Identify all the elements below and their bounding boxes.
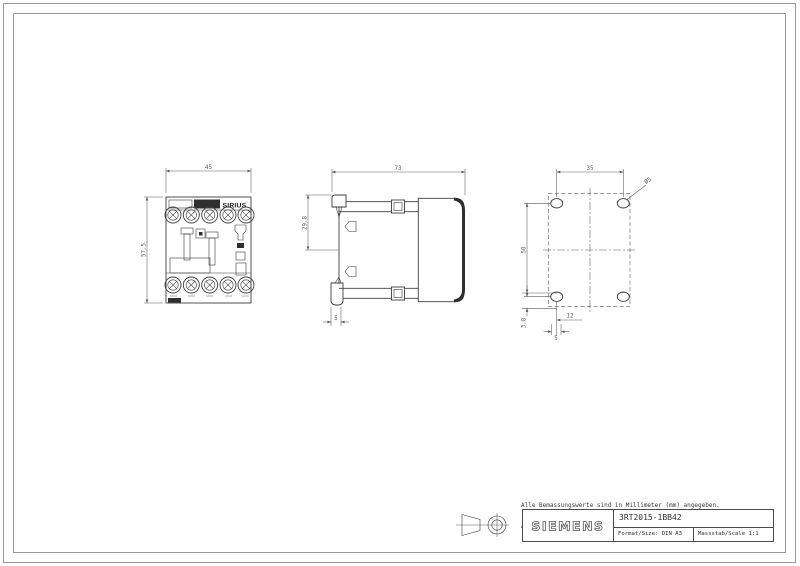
terminal-screw-block <box>392 200 405 213</box>
first-angle-projection-icon <box>452 506 514 544</box>
mounting-hole <box>551 292 563 301</box>
front-width-dim-label: 45 <box>205 165 212 171</box>
side-foot-dim-label: 5 <box>334 316 338 322</box>
type-label <box>168 298 181 303</box>
offset-y-dimension: 5 <box>544 324 570 342</box>
h-spacing-label: 35 <box>587 166 594 172</box>
mounting-hole <box>551 199 563 208</box>
front-height-dim-label: 57.5 <box>142 243 148 257</box>
siemens-logo: SIEMENS <box>523 510 614 541</box>
contactor-side-body <box>331 195 464 305</box>
front-view: 45 57.5 SIRIUS <box>140 160 270 320</box>
offset-x-label: 12 <box>567 314 574 320</box>
terminal-screw-block <box>392 287 405 300</box>
mounting-lug <box>345 222 356 232</box>
offset-x-dimension: 12 <box>557 314 582 321</box>
side-width-dim-label: 73 <box>395 166 402 172</box>
title-block: SIEMENS 3RT2015-1BB42 Format/Size: DIN A… <box>522 509 774 542</box>
drilling-pattern-view: 35 Ø5 50 3.8 12 <box>510 160 685 345</box>
drawing-sheet: 45 57.5 SIRIUS <box>0 0 800 566</box>
edge-offset-label: 3.8 <box>522 317 528 328</box>
projection-symbol <box>452 506 514 544</box>
note-line-de: Alle Bemassungswerte sind in Millimeter … <box>521 502 720 509</box>
siemens-logo-text: SIEMENS <box>531 518 604 533</box>
side-width-dimension: 73 <box>332 166 465 195</box>
mounting-lug <box>345 267 356 277</box>
v-spacing-label: 50 <box>522 246 528 253</box>
format-size-label: Format/Size: DIN A3 <box>614 528 694 541</box>
mounting-hole <box>617 199 629 208</box>
din-rail-foot <box>331 283 343 305</box>
side-foot-dimension: 5 <box>323 307 349 326</box>
scale-label: Massstab/Scale 1:1 <box>694 528 773 541</box>
contactor-front-body: SIRIUS <box>165 197 254 303</box>
front-width-dimension: 45 <box>166 165 251 193</box>
hole-diameter-callout: Ø5 <box>627 176 653 200</box>
din-rail-clip-top <box>332 195 346 207</box>
side-clip-dim-label: 29.8 <box>303 216 309 230</box>
hole-diameter-label: Ø5 <box>643 176 653 186</box>
sirius-brand-label: SIRIUS <box>223 203 247 210</box>
coil-housing <box>418 198 464 301</box>
front-height-dimension: 57.5 <box>142 197 164 303</box>
part-number: 3RT2015-1BB42 <box>614 510 773 528</box>
offset-y-label: 5 <box>554 336 558 342</box>
side-view: 73 29.8 <box>295 160 480 335</box>
mounting-hole <box>617 292 629 301</box>
